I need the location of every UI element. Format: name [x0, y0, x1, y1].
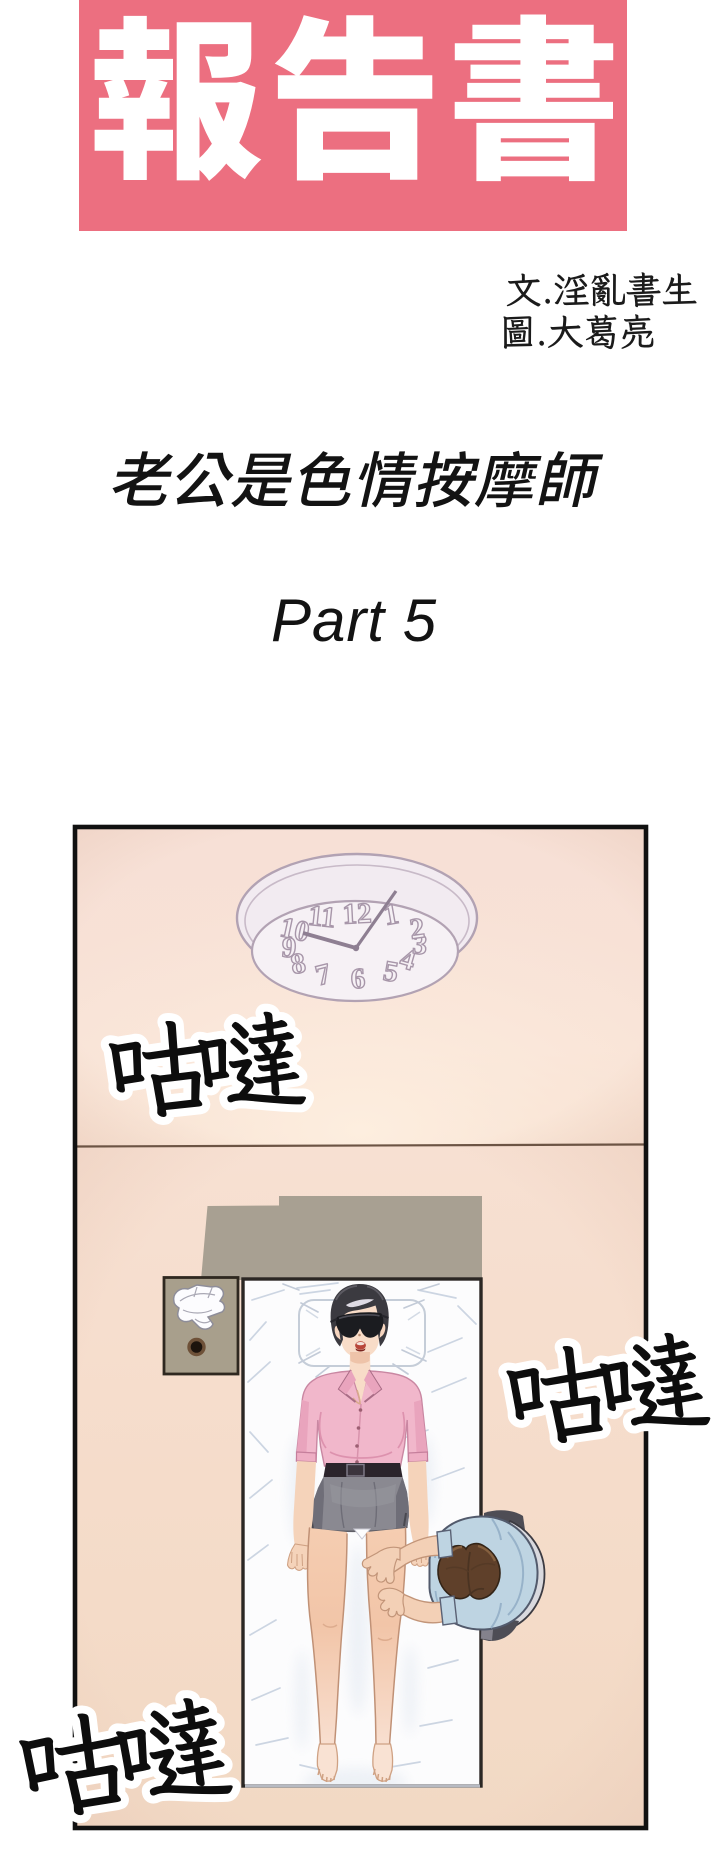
svg-text:Part 5: Part 5	[271, 587, 437, 654]
svg-text:6: 6	[350, 963, 366, 996]
svg-text:12: 12	[342, 897, 373, 930]
